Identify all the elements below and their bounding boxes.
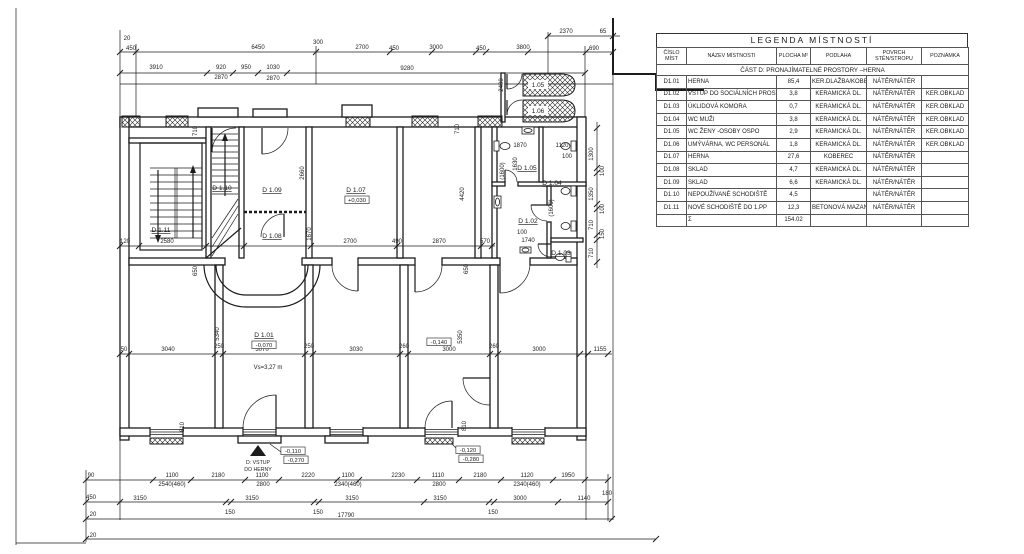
legend-cell: D1.09	[657, 176, 687, 189]
legend-cell: NÁTĚR/NÁTĚR	[867, 88, 922, 101]
dim-label: 2220	[301, 473, 315, 479]
legend-cell: KOBEREC	[811, 151, 867, 164]
dim-label: 710	[455, 123, 461, 134]
dim-label: 1870	[513, 143, 527, 149]
legend-cell	[811, 214, 867, 227]
dim-label: 690	[589, 46, 600, 52]
legend-cell	[922, 214, 969, 227]
dim-label: 250	[214, 344, 225, 350]
dim-label: 810	[180, 421, 186, 432]
dim-label: 50	[121, 347, 128, 353]
dim-label: 2540(460)	[158, 482, 185, 488]
note-label: DO HERNY	[244, 467, 272, 473]
dim-label: 3040	[161, 347, 175, 353]
legend-cell: NÁTĚR/NÁTĚR	[867, 176, 922, 189]
legend-cell: NEPOUŽÍVANÉ SCHODIŠTĚ	[687, 189, 777, 202]
dim-label: 2700	[343, 239, 357, 245]
drawing-sheet: 2045064503002700450300045038006902370653…	[0, 0, 1024, 554]
legend-cell: D1.11	[657, 201, 687, 214]
legend-row: D1.08SKLAD4,7KERAMICKÁ DL.NÁTĚR/NÁTĚR	[657, 164, 969, 177]
legend-cell	[922, 76, 969, 89]
dim-label: 2700	[355, 45, 369, 51]
level-label: -0,070	[256, 343, 272, 349]
dim-label: 2340(460)	[334, 482, 361, 488]
legend-row: D1.06UMÝVÁRNA, WC PERSONÁL1,8KERAMICKÁ D…	[657, 138, 969, 151]
legend-row: Σ154.02	[657, 214, 969, 227]
level-label: -0,140	[431, 340, 447, 346]
dim-label: 3000	[429, 45, 443, 51]
dim-label: 920	[216, 65, 227, 71]
legend-cell	[922, 151, 969, 164]
dim-label: 250	[304, 344, 315, 350]
dim-label: 1120	[521, 473, 535, 479]
dim-label: 1030	[266, 65, 280, 71]
dim-label: 100	[517, 230, 528, 236]
dim-label: 450	[86, 495, 97, 501]
legend-cell: D1.05	[657, 126, 687, 139]
dim-label: 5340	[215, 327, 221, 341]
legend-cell	[867, 214, 922, 227]
dim-label: 710	[193, 125, 199, 136]
dim-label: 260	[489, 344, 500, 350]
legend-header-cell: NÁZEV MÍSTNOSTI	[687, 48, 777, 65]
legend-header-row: ČÍSLO MÍSTNÁZEV MÍSTNOSTIPLOCHA M²PODLAH…	[657, 48, 969, 65]
legend-cell: HERNA	[687, 151, 777, 164]
legend-cell: KERAMICKÁ DL.	[811, 126, 867, 139]
dim-label: (1600)	[500, 162, 506, 179]
dim-label: 3150	[245, 496, 259, 502]
dim-label: 1100	[256, 473, 270, 479]
legend-cell: NÁTĚR/NÁTĚR	[867, 164, 922, 177]
legend-cell: D1.02	[657, 88, 687, 101]
legend-cell: NOVÉ SCHODIŠTĚ DO 1.PP	[687, 201, 777, 214]
dim-label: 300	[313, 40, 324, 46]
dim-label: 65	[600, 29, 607, 35]
dim-label: 180	[602, 491, 613, 497]
ramp-label: 1.06	[532, 108, 545, 115]
legend-cell: 4,5	[777, 189, 811, 202]
ramp-label: 1.05	[532, 82, 545, 89]
room-label: D 1.01	[254, 332, 274, 339]
legend-header-cell: ČÍSLO MÍST	[657, 48, 687, 65]
dim-label: 4420	[460, 187, 466, 201]
dim-label: 6450	[251, 45, 265, 51]
legend-header-cell: POVRCH STĚN/STROPU	[867, 48, 922, 65]
dim-label: 450	[389, 46, 400, 52]
note-label: Vs=3,27 m	[254, 365, 283, 371]
dim-label: 2870	[432, 239, 446, 245]
legend-cell: 6,6	[777, 176, 811, 189]
dim-label: 2580	[160, 239, 174, 245]
legend-cell: SKLAD	[687, 176, 777, 189]
legend-cell: 4,7	[777, 164, 811, 177]
entrance-arrow	[250, 445, 266, 456]
dim-label: 100	[600, 165, 606, 176]
dim-label: 1670	[307, 227, 313, 241]
legend-cell: NÁTĚR/NÁTĚR	[867, 138, 922, 151]
stair-d111	[140, 143, 202, 250]
dim-label: 20	[90, 512, 97, 518]
dim-label: 260	[399, 344, 410, 350]
dim-label: 3150	[133, 496, 147, 502]
legend-cell: KER.OBKLAD	[922, 101, 969, 114]
legend-cell: D1.10	[657, 189, 687, 202]
dim-label: 2400	[499, 78, 505, 92]
legend-header-cell: PLOCHA M²	[777, 48, 811, 65]
dim-label: 1155	[594, 347, 608, 353]
legend-cell	[922, 176, 969, 189]
dim-label: 2870	[214, 75, 228, 81]
legend-grid: ČÍSLO MÍSTNÁZEV MÍSTNOSTIPLOCHA M²PODLAH…	[656, 47, 969, 227]
legend-cell: D1.01	[657, 76, 687, 89]
legend-cell: WC MUŽI	[687, 113, 777, 126]
dim-label: 100	[600, 203, 606, 214]
legend-cell: D1.07	[657, 151, 687, 164]
legend-cell: WC ŽENY -OSOBY OSPO	[687, 126, 777, 139]
legend-row: D1.10NEPOUŽÍVANÉ SCHODIŠTĚ4,5NÁTĚR/NÁTĚR	[657, 189, 969, 202]
room-label: D 1.03	[551, 250, 571, 257]
dim-label: 1140	[578, 496, 592, 502]
legend-cell: D1.04	[657, 113, 687, 126]
legend-cell: KER.OBKLAD	[922, 113, 969, 126]
legend-cell: NÁTĚR/NÁTĚR	[867, 126, 922, 139]
room-label: D 1.07	[346, 187, 366, 194]
dim-label: 2660	[300, 166, 306, 180]
dim-label: 1350	[589, 187, 595, 201]
legend-cell: UMÝVÁRNA, WC PERSONÁL	[687, 138, 777, 151]
dim-label: 100	[562, 154, 573, 160]
dim-label: 9280	[400, 66, 414, 72]
dim-label: 450	[126, 46, 137, 52]
level-label: -0,110	[285, 449, 301, 455]
legend-row: D1.11NOVÉ SCHODIŠTĚ DO 1.PP12,3BETONOVÁ …	[657, 201, 969, 214]
legend-cell: KERAMICKÁ DL.	[811, 101, 867, 114]
dim-label: 150	[313, 510, 324, 516]
legend-cell: NÁTĚR/NÁTĚR	[867, 151, 922, 164]
legend-table: LEGENDA MÍSTNOSTÍ ČÍSLO MÍSTNÁZEV MÍSTNO…	[656, 33, 968, 227]
level-label: -0,120	[460, 448, 476, 454]
legend-cell: 0,7	[777, 101, 811, 114]
dim-label: 20	[124, 36, 131, 42]
dim-label: 650	[464, 263, 470, 274]
legend-row: D1.09SKLAD6,6KERAMICKÁ DL.NÁTĚR/NÁTĚR	[657, 176, 969, 189]
legend-cell: NÁTĚR/NÁTĚR	[867, 201, 922, 214]
legend-cell	[922, 201, 969, 214]
legend-cell: 27,6	[777, 151, 811, 164]
dim-label: 5350	[458, 330, 464, 344]
dim-label: 950	[241, 65, 252, 71]
legend-cell: 12,3	[777, 201, 811, 214]
dim-label: 3030	[349, 347, 363, 353]
dim-label: 3150	[433, 496, 447, 502]
dim-label: 2870	[266, 76, 280, 82]
level-label: +0,030	[348, 198, 366, 204]
dim-label: 150	[488, 510, 499, 516]
dim-label: 1100	[166, 473, 180, 479]
legend-section-row: ČÁST D: PRONAJÍMATELNÉ PROSTORY –HERNA	[657, 65, 969, 76]
legend-row: D1.01HERNA85,4KER.DLAŽBA/KOBERECNÁTĚR/NÁ…	[657, 76, 969, 89]
dim-label: 3800	[516, 45, 530, 51]
legend-title: LEGENDA MÍSTNOSTÍ	[656, 33, 968, 47]
legend-cell: Σ	[687, 214, 777, 227]
legend-cell: 2,9	[777, 126, 811, 139]
legend-cell: KER.OBKLAD	[922, 126, 969, 139]
room-label: D 1.05	[517, 165, 537, 172]
legend-cell: D1.08	[657, 164, 687, 177]
dim-label: 3000	[513, 496, 527, 502]
dim-label: (1600)	[549, 199, 555, 216]
legend-row: D1.03ÚKLIDOVÁ KOMORA0,7KERAMICKÁ DL.NÁTĚ…	[657, 101, 969, 114]
legend-cell: KER.OBKLAD	[922, 88, 969, 101]
legend-cell: 1,8	[777, 138, 811, 151]
dim-label: 2340(460)	[513, 482, 540, 488]
legend-cell: KERAMICKÁ DL.	[811, 164, 867, 177]
legend-cell	[657, 214, 687, 227]
dim-label: 2180	[211, 473, 225, 479]
dim-label: 1950	[561, 473, 575, 479]
legend-cell: KERAMICKÁ DL.	[811, 113, 867, 126]
dim-label: 2800	[256, 482, 270, 488]
legend-section-cell: ČÁST D: PRONAJÍMATELNÉ PROSTORY –HERNA	[657, 65, 969, 76]
dim-label: 3000	[532, 347, 546, 353]
legend-row: D1.02VSTUP DO SOCIÁLNÍCH PROSTOR3,8KERAM…	[657, 88, 969, 101]
level-label: -0,280	[463, 457, 479, 463]
legend-cell: NÁTĚR/NÁTĚR	[867, 101, 922, 114]
dim-label: 1120	[556, 143, 570, 149]
dim-label: 570	[480, 239, 491, 245]
dim-label: 1740	[521, 238, 535, 244]
legend-cell: HERNA	[687, 76, 777, 89]
dim-label: 150	[600, 228, 606, 239]
level-label: -0,270	[288, 458, 304, 464]
legend-cell: 154.02	[777, 214, 811, 227]
dim-label: 150	[225, 510, 236, 516]
dim-label: 120	[120, 239, 131, 245]
dim-label: 810	[462, 420, 468, 431]
room-label: D 1.10	[212, 185, 232, 192]
dim-label: 1100	[342, 473, 356, 479]
dim-label: 2180	[473, 473, 487, 479]
dim-label: 450	[476, 46, 487, 52]
dim-label: 20	[90, 533, 97, 539]
dim-label: 490	[392, 239, 403, 245]
legend-cell: NÁTĚR/NÁTĚR	[867, 113, 922, 126]
dim-label: 650	[193, 265, 199, 276]
legend-cell	[922, 189, 969, 202]
legend-header-cell: POZNÁMKA	[922, 48, 969, 65]
room-label: D 1.04	[542, 180, 562, 187]
legend-cell: 85,4	[777, 76, 811, 89]
dim-label: 2370	[559, 29, 573, 35]
dim-label: 1110	[432, 473, 445, 479]
legend-cell	[811, 189, 867, 202]
legend-cell: D1.06	[657, 138, 687, 151]
legend-cell: NÁTĚR/NÁTĚR	[867, 189, 922, 202]
dim-label: 1300	[589, 147, 595, 161]
legend-cell	[922, 164, 969, 177]
room-label: D 1.09	[262, 187, 282, 194]
dim-label: 17790	[338, 513, 355, 519]
legend-cell: D1.03	[657, 101, 687, 114]
dim-label: 90	[88, 473, 95, 479]
legend-cell: KERAMICKÁ DL.	[811, 138, 867, 151]
legend-cell: 3,8	[777, 113, 811, 126]
legend-cell: 3,8	[777, 88, 811, 101]
legend-header-cell: PODLAHA	[811, 48, 867, 65]
room-label: D 1.08	[262, 233, 282, 240]
walls	[120, 73, 586, 440]
dim-label: 2800	[432, 482, 446, 488]
room-label: D 1.02	[518, 218, 538, 225]
room-label: D 1.11	[152, 227, 171, 234]
dim-label: 2230	[391, 473, 405, 479]
legend-row: D1.07HERNA27,6KOBERECNÁTĚR/NÁTĚR	[657, 151, 969, 164]
legend-cell: KERAMICKÁ DL.	[811, 88, 867, 101]
dim-label: 3910	[149, 65, 163, 71]
dim-label: 3150	[345, 496, 359, 502]
legend-cell: ÚKLIDOVÁ KOMORA	[687, 101, 777, 114]
legend-cell: NÁTĚR/NÁTĚR	[867, 76, 922, 89]
note-label: D: VSTUP	[246, 460, 270, 466]
legend-cell: SKLAD	[687, 164, 777, 177]
legend-cell: KER.OBKLAD	[922, 138, 969, 151]
legend-cell: KER.DLAŽBA/KOBEREC	[811, 76, 867, 89]
legend-row: D1.04WC MUŽI3,8KERAMICKÁ DL.NÁTĚR/NÁTĚRK…	[657, 113, 969, 126]
legend-row: D1.05WC ŽENY -OSOBY OSPO2,9KERAMICKÁ DL.…	[657, 126, 969, 139]
legend-cell: BETONOVÁ MAZANINA	[811, 201, 867, 214]
dim-label: 3000	[442, 347, 456, 353]
legend-cell: VSTUP DO SOCIÁLNÍCH PROSTOR	[687, 88, 777, 101]
legend-cell: KERAMICKÁ DL.	[811, 176, 867, 189]
dim-label: 710	[589, 247, 595, 258]
dim-label: 710	[589, 219, 595, 230]
